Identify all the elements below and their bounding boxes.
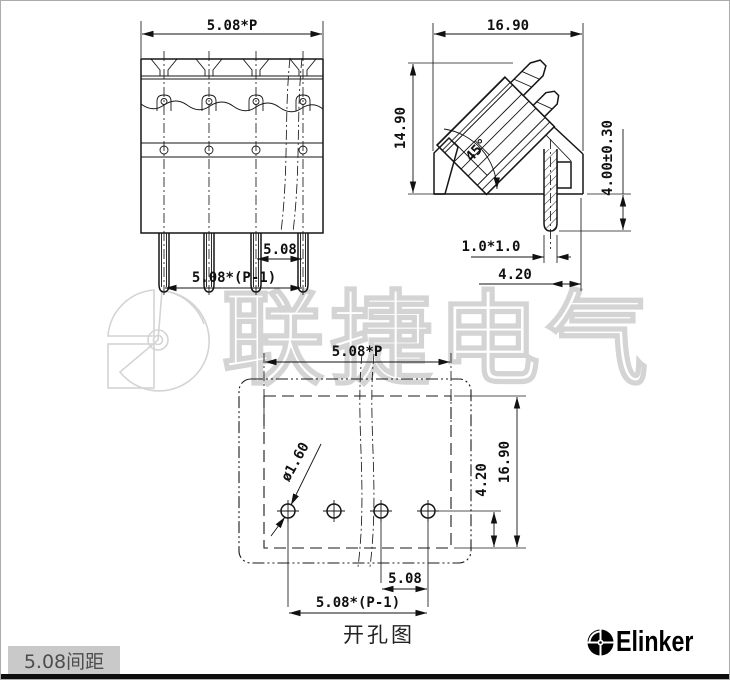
hole-pattern — [277, 500, 439, 522]
front-view: 5.08*P — [141, 18, 323, 298]
side-dim-pin-section: 1.0*1.0 — [461, 239, 520, 255]
hole-dim-depth: 16.90 — [497, 441, 513, 483]
pitch-label-box: 5.08间距 — [8, 646, 120, 675]
hole-view: 5.08*P ø1.60 4.20 16.90 — [239, 344, 526, 647]
side-dim-height: 14.90 — [393, 107, 409, 149]
side-view: 16.90 14.90 — [393, 18, 631, 291]
hole-dim-row-offset: 4.20 — [474, 463, 490, 497]
side-dim-pin-offset: 4.20 — [498, 267, 532, 283]
side-dim-width: 16.90 — [487, 18, 529, 34]
pitch-label: 5.08间距 — [24, 647, 104, 674]
front-dim-pitch: 5.08 — [263, 242, 297, 258]
bottom-black-strip — [1, 674, 730, 679]
hole-dim-pitch-total: 5.08*P — [332, 344, 383, 360]
front-dim-pitch-total: 5.08*P — [207, 18, 258, 34]
side-dim-pin-length: 4.00±0.30 — [600, 120, 616, 196]
hole-view-caption: 开孔图 — [343, 623, 415, 647]
technical-drawing: 5.08*P — [1, 1, 730, 680]
drawing-sheet: 联捷电气 5.08*P — [0, 0, 730, 680]
brand-logo-icon — [587, 629, 614, 656]
hole-dim-diameter: ø1.60 — [278, 440, 312, 485]
hole-dim-pitch: 5.08 — [388, 571, 422, 587]
brand-name: Elinker — [616, 628, 693, 657]
hole-dim-span: 5.08*(P-1) — [316, 595, 400, 611]
front-dim-span: 5.08*(P-1) — [192, 270, 276, 286]
brand-logo: Elinker — [587, 628, 713, 657]
